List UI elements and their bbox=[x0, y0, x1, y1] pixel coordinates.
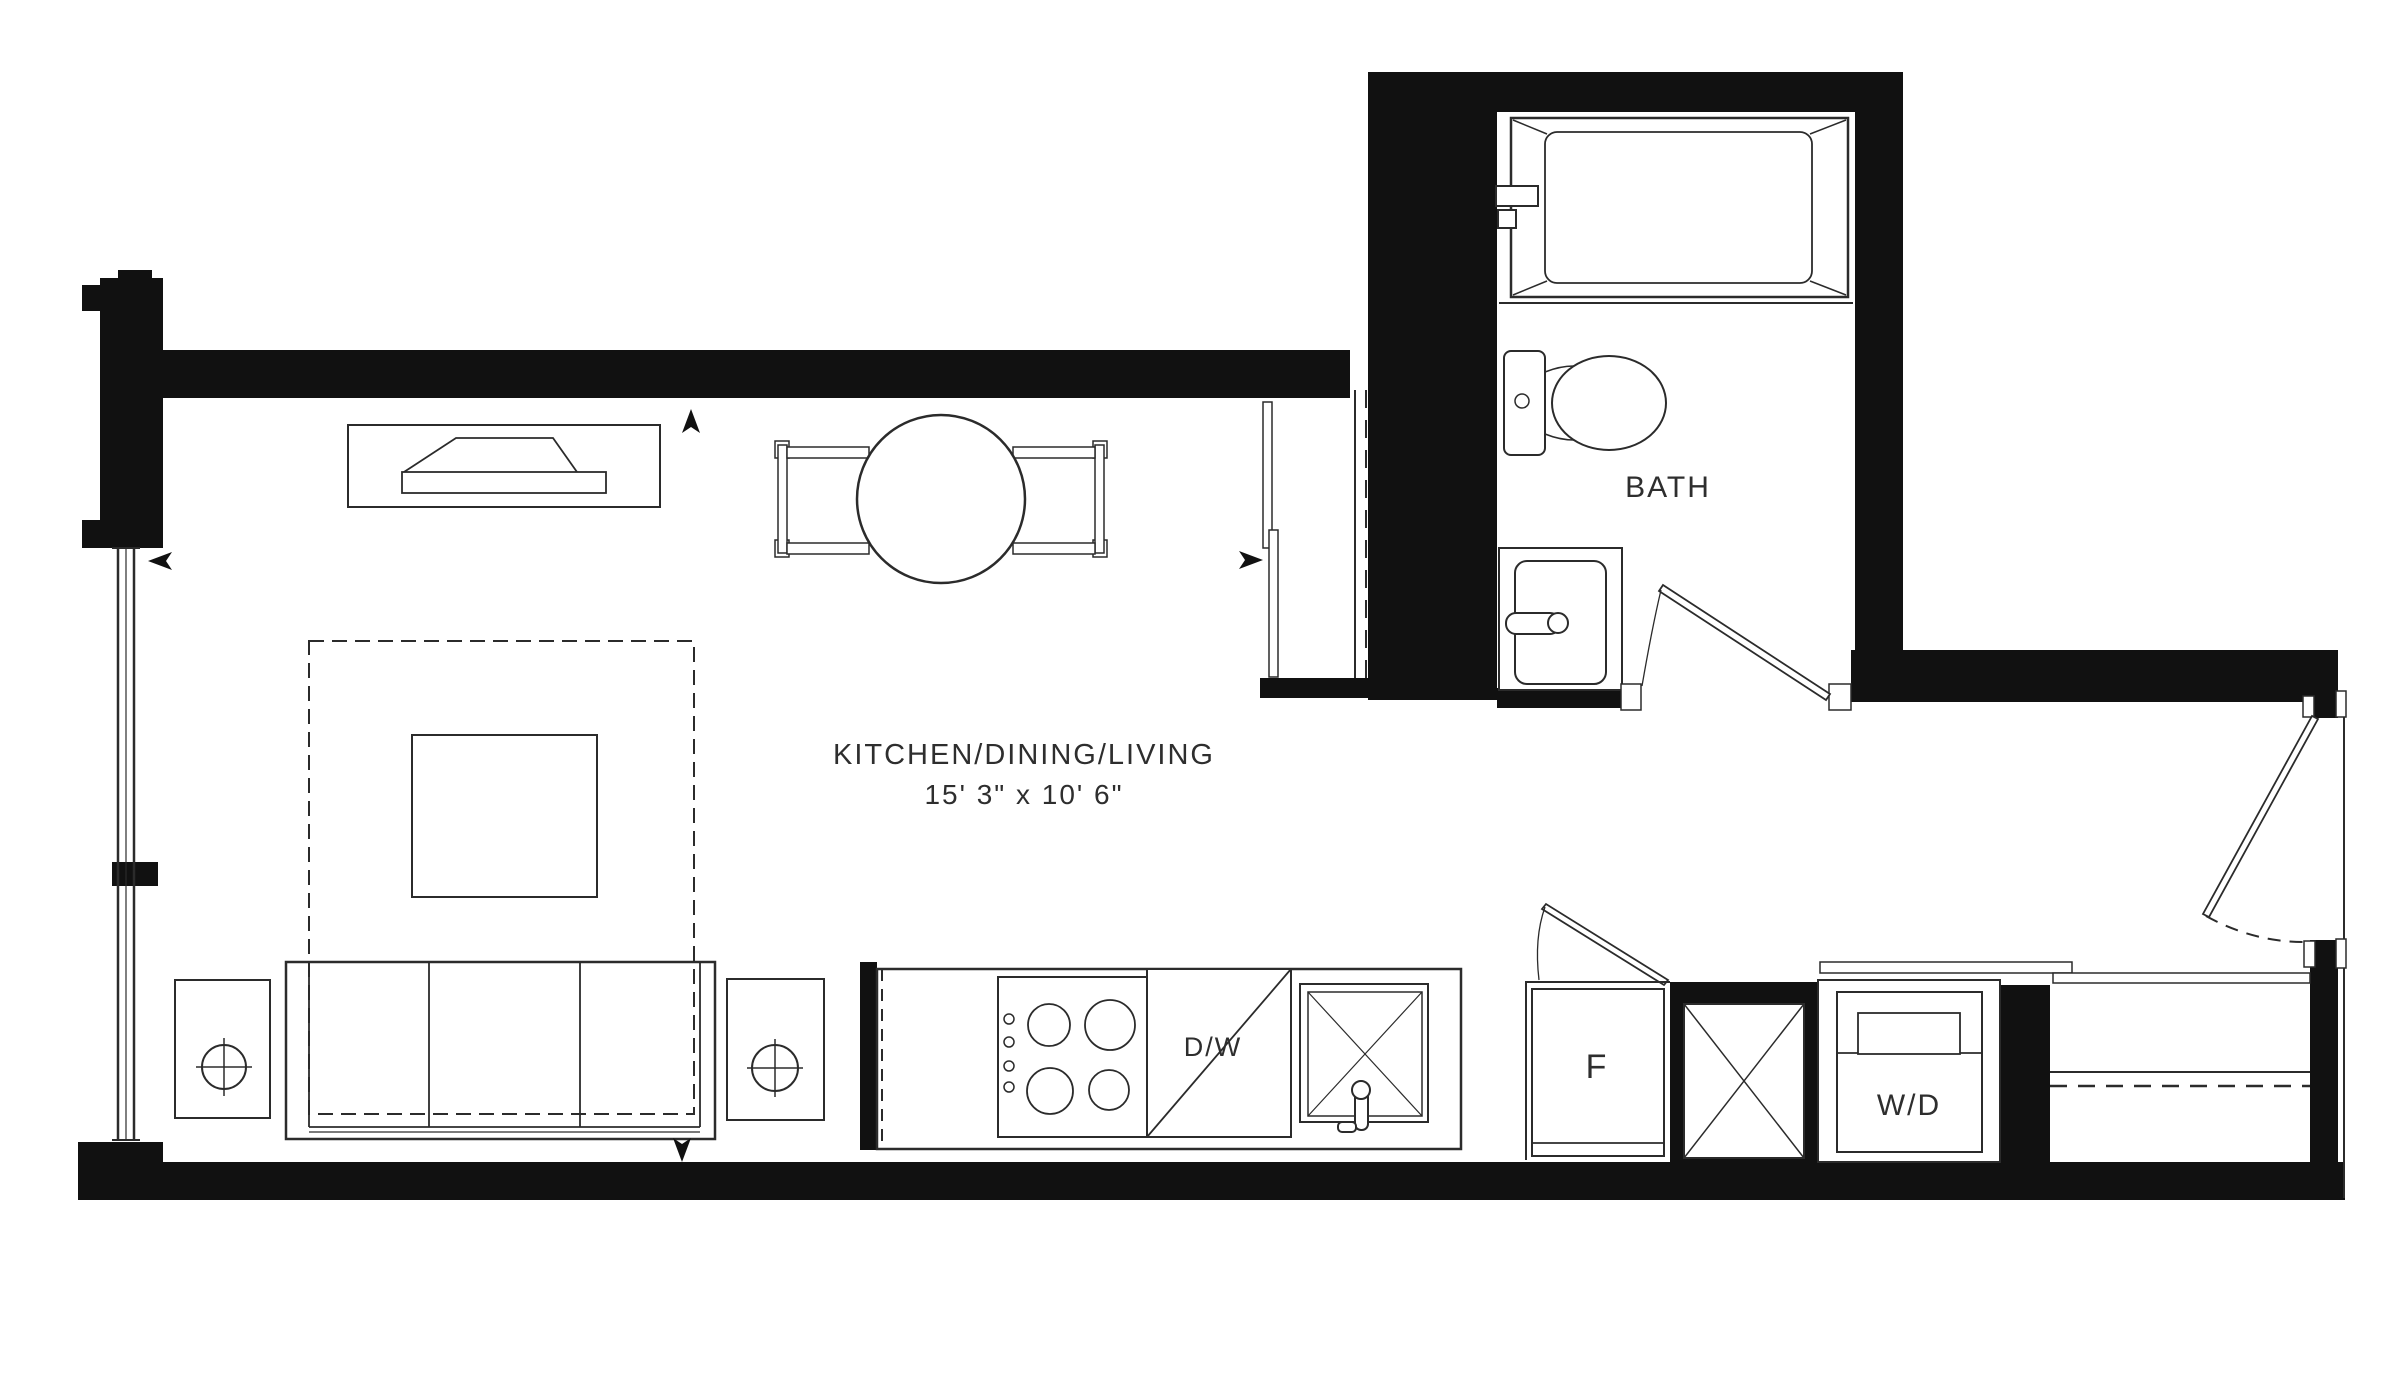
window bbox=[112, 548, 140, 1140]
knob-icon bbox=[1004, 1061, 1014, 1071]
wall-left-column bbox=[100, 278, 163, 548]
knob-icon bbox=[1004, 1082, 1014, 1092]
bath-door-leaf bbox=[1659, 585, 1830, 700]
door-jamb bbox=[1621, 684, 1641, 710]
knob-icon bbox=[1004, 1014, 1014, 1024]
fridge-label: F bbox=[1586, 1048, 1609, 1086]
dishwasher-label: D/W bbox=[1184, 1032, 1242, 1062]
burner-icon bbox=[1089, 1070, 1129, 1110]
wall-kitchen-stub bbox=[860, 962, 877, 1150]
coffee-table bbox=[412, 735, 597, 897]
tub-faucet-icon bbox=[1496, 186, 1538, 206]
sliding-door-panel bbox=[1269, 530, 1278, 677]
dining-table bbox=[857, 415, 1025, 583]
bath-door-swing bbox=[1642, 590, 1661, 686]
wall-bath-north bbox=[1370, 72, 1903, 112]
fridge: F bbox=[1526, 982, 1670, 1160]
wall-left-column-foot-bottom bbox=[82, 520, 102, 548]
burner-icon bbox=[1027, 1068, 1073, 1114]
cooktop bbox=[998, 977, 1147, 1137]
sink-spout-icon bbox=[1338, 1122, 1356, 1132]
tub-handle-icon bbox=[1498, 210, 1516, 228]
closet-shelf bbox=[2053, 973, 2310, 983]
wall-corridor-north bbox=[1851, 650, 2338, 702]
washer-dryer-label: W/D bbox=[1877, 1089, 1941, 1122]
wall-living-north bbox=[160, 350, 1350, 398]
wall-left-column-foot-top bbox=[82, 285, 102, 311]
sink-faucet-icon bbox=[1352, 1081, 1370, 1099]
wall-bath-east bbox=[1855, 72, 1903, 700]
sofa bbox=[286, 962, 715, 1139]
wall-bath-west bbox=[1368, 72, 1497, 700]
arrow-up-icon bbox=[682, 409, 700, 433]
fridge-door bbox=[1537, 904, 1668, 985]
door-jamb bbox=[2336, 939, 2346, 968]
door-jamb bbox=[2303, 696, 2314, 717]
floor-plan-drawing: D/W F W/D bbox=[0, 0, 2407, 1399]
door-jamb bbox=[2304, 941, 2315, 967]
burner-icon bbox=[1028, 1004, 1070, 1046]
vanity-sink bbox=[1499, 548, 1622, 690]
sliding-door-panel bbox=[1263, 402, 1272, 548]
side-table-left bbox=[175, 980, 270, 1118]
sliding-closet bbox=[1263, 390, 1366, 678]
burner-icon bbox=[1085, 1000, 1135, 1050]
entry-door-swing bbox=[2206, 916, 2304, 942]
door-jamb bbox=[2336, 691, 2346, 717]
bath-door bbox=[1621, 585, 1851, 710]
entry-door bbox=[2203, 691, 2346, 968]
bathtub bbox=[1496, 118, 1848, 297]
wall-closet-south bbox=[1260, 678, 1422, 698]
dishwasher: D/W bbox=[1147, 969, 1291, 1137]
fridge-door-swing bbox=[1537, 907, 1545, 980]
toilet bbox=[1504, 351, 1666, 455]
dining-chair-left bbox=[775, 441, 869, 557]
area-rug bbox=[309, 641, 694, 1114]
dining-chair-right bbox=[1013, 441, 1107, 557]
wall-east-below-entry bbox=[2310, 940, 2338, 1200]
arrow-right-icon bbox=[1239, 551, 1263, 569]
wall-entry-closet-west bbox=[2000, 985, 2050, 1162]
floor-plan: D/W F W/D bbox=[0, 0, 2407, 1399]
wall-south bbox=[100, 1162, 2345, 1200]
tv-console bbox=[348, 425, 660, 507]
main-room-label: KITCHEN/DINING/LIVING bbox=[833, 739, 1215, 771]
mechanical-shaft bbox=[1684, 1004, 1804, 1158]
bath-room-label: BATH bbox=[1625, 471, 1711, 504]
door-jamb bbox=[1829, 684, 1851, 710]
knob-icon bbox=[1004, 1037, 1014, 1047]
kitchen-sink bbox=[1300, 984, 1428, 1132]
fridge-door-leaf bbox=[1542, 904, 1668, 985]
entry-door-leaf bbox=[2203, 716, 2318, 917]
closet-shelf bbox=[1820, 962, 2072, 973]
washer-dryer: W/D bbox=[1818, 980, 2000, 1162]
side-table-right bbox=[727, 979, 824, 1120]
main-room-dimensions: 15' 3" x 10' 6" bbox=[924, 779, 1123, 810]
arrow-down-icon bbox=[673, 1138, 691, 1162]
arrow-left-icon bbox=[148, 552, 172, 570]
